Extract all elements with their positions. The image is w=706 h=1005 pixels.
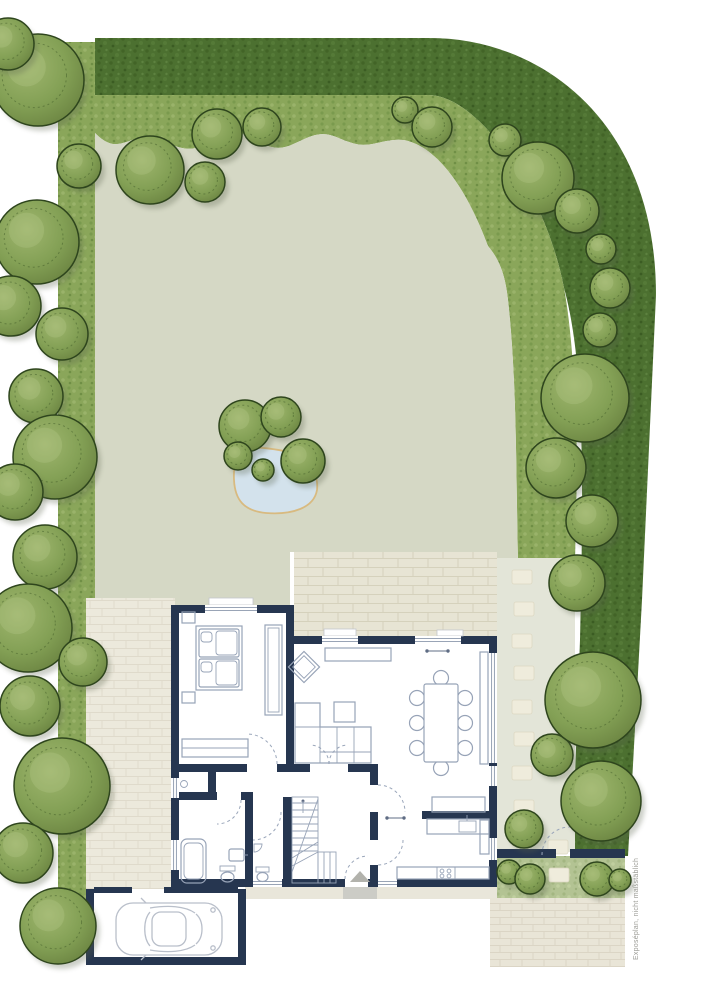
tree: [0, 676, 64, 741]
stepping-stone: [514, 666, 534, 680]
stepping-stone: [512, 634, 532, 648]
carport-wall-bottom: [86, 957, 246, 965]
driveway-path-left: [86, 598, 175, 889]
stepping-stone: [514, 732, 534, 746]
street-paving: [490, 898, 625, 967]
stepping-stone: [514, 602, 534, 616]
dining-table: [424, 684, 458, 762]
garden-wall-right: [570, 849, 625, 858]
carport-wall-right: [238, 889, 246, 965]
carport: [86, 887, 246, 965]
stepping-stone: [512, 570, 532, 584]
site-plan: Exposéplan, nicht maßstäblich: [0, 0, 706, 1000]
entrance-pad: [343, 887, 377, 899]
stepping-stone: [512, 700, 532, 714]
stepping-stone: [512, 766, 532, 780]
plan-disclaimer: Exposéplan, nicht maßstäblich: [633, 858, 640, 960]
carport-wall-top-a: [94, 887, 132, 893]
house-floorplan: [171, 598, 497, 887]
terrace: [294, 552, 497, 640]
stepping-stone: [549, 868, 569, 882]
carport-wall-top-b: [164, 887, 238, 893]
